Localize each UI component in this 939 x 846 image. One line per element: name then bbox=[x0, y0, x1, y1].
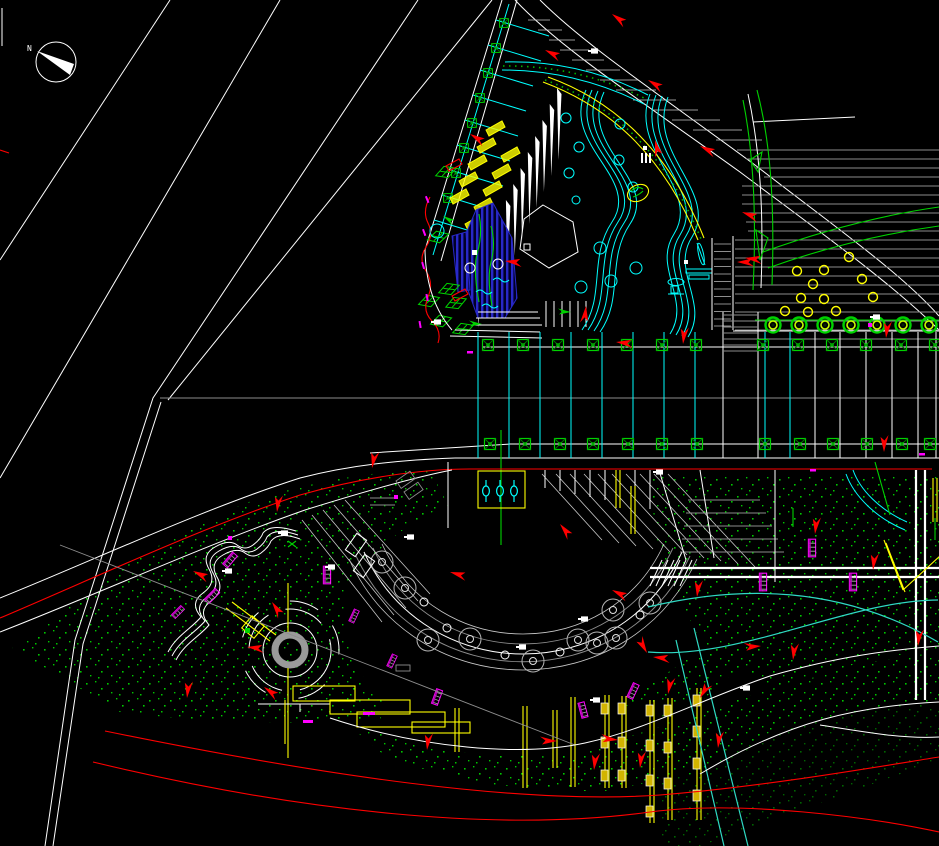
north-label: N bbox=[27, 44, 32, 53]
cad-viewport[interactable]: N bbox=[0, 0, 939, 846]
cad-canvas[interactable]: N bbox=[0, 0, 939, 846]
